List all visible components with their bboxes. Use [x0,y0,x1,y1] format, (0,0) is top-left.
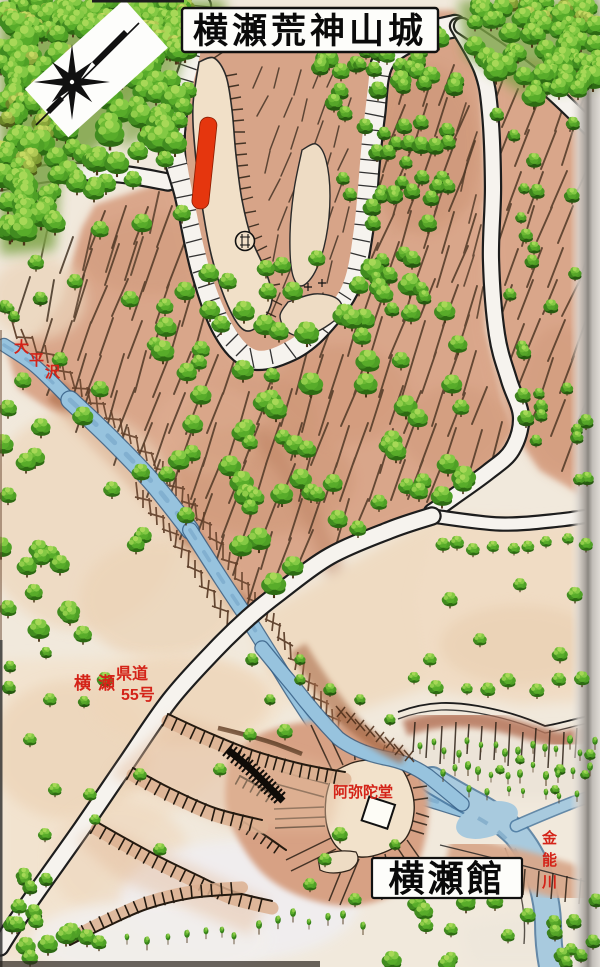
svg-text:沢: 沢 [45,363,61,381]
svg-text:川: 川 [541,874,557,891]
svg-text:横瀬: 横瀬 [74,673,122,693]
svg-text:阿弥陀堂: 阿弥陀堂 [333,783,393,801]
svg-text:県道: 県道 [116,664,148,683]
svg-text:金: 金 [541,829,558,847]
svg-text:大: 大 [14,338,29,356]
svg-text:55号: 55号 [121,686,155,704]
svg-text:能: 能 [542,851,557,869]
svg-text:横瀬館: 横瀬館 [388,858,505,899]
svg-text:平: 平 [29,352,44,369]
svg-text:横瀬荒神山城: 横瀬荒神山城 [193,12,427,51]
